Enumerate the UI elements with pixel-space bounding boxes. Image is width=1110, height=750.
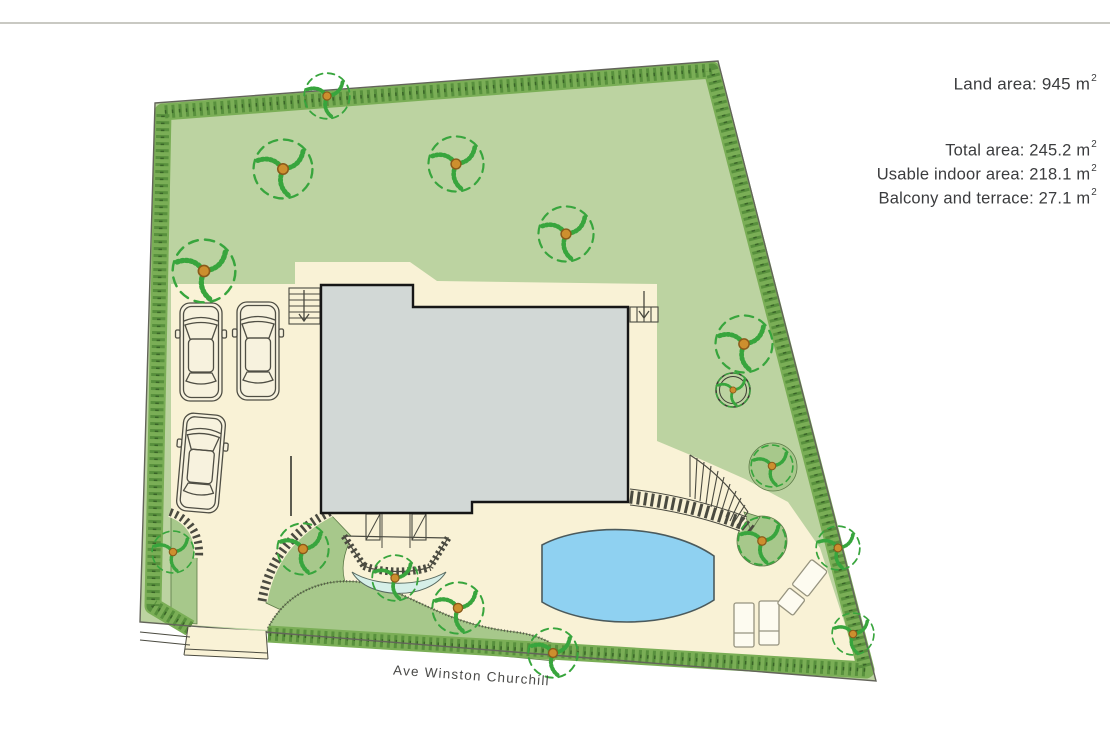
stairs-left bbox=[289, 288, 320, 324]
balcony-terrace-label: Balcony and terrace: 27.1 m2 bbox=[877, 185, 1097, 209]
area-info-panel: Land area: 945 m2 Total area: 245.2 m2 U… bbox=[877, 70, 1097, 209]
building-footprint bbox=[321, 285, 628, 513]
sun-lounger bbox=[734, 603, 754, 647]
sun-lounger bbox=[759, 601, 779, 645]
car-icon bbox=[176, 303, 227, 401]
site-plan-page: Land area: 945 m2 Total area: 245.2 m2 U… bbox=[0, 0, 1110, 750]
swimming-pool bbox=[542, 530, 714, 622]
usable-indoor-area-label: Usable indoor area: 218.1 m2 bbox=[877, 161, 1097, 185]
land-area-label: Land area: 945 m2 bbox=[877, 70, 1097, 95]
driveway-entrance bbox=[140, 627, 268, 659]
total-area-label: Total area: 245.2 m2 bbox=[877, 137, 1097, 161]
car-icon bbox=[233, 302, 284, 400]
